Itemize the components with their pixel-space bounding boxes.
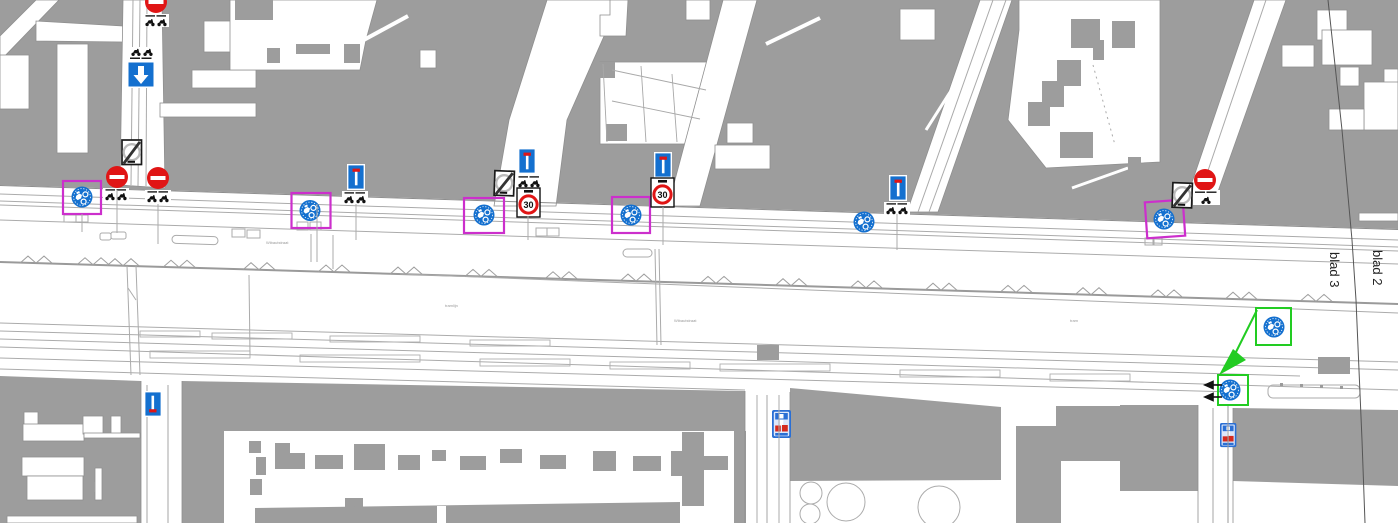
svg-text:Wibautstraat: Wibautstraat — [674, 318, 697, 323]
svg-text:tram: tram — [1070, 318, 1079, 323]
svg-text:tramlijn: tramlijn — [445, 303, 458, 308]
svg-text:blad 3: blad 3 — [1327, 252, 1342, 287]
svg-text:blad 2: blad 2 — [1370, 250, 1385, 285]
svg-text:Wibautstraat: Wibautstraat — [266, 240, 289, 245]
